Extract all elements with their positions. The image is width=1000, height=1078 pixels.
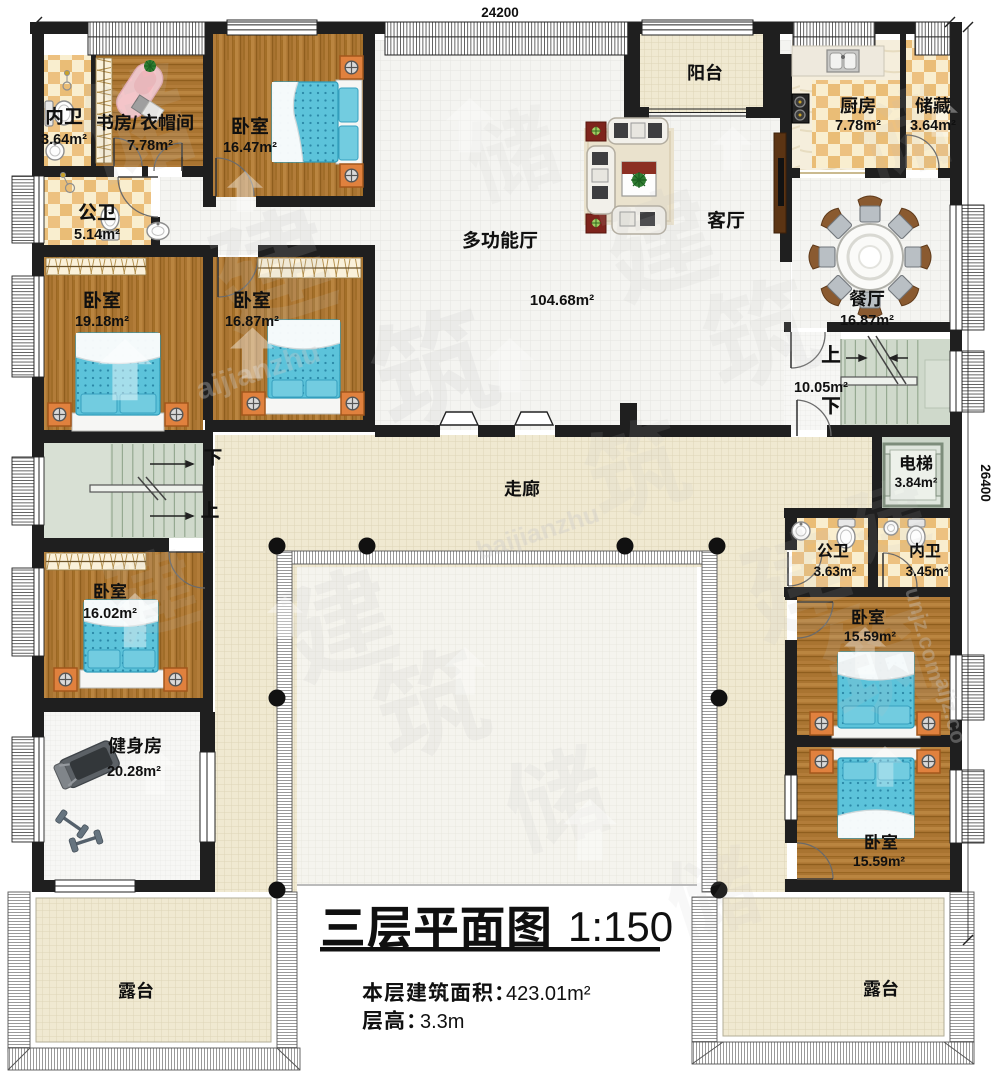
svg-text:3.45m²: 3.45m² (906, 564, 949, 579)
svg-text:7.78m²: 7.78m² (835, 118, 881, 134)
svg-text:20.28m²: 20.28m² (107, 764, 161, 780)
svg-text:15.59m²: 15.59m² (844, 628, 896, 644)
svg-text:3.3m: 3.3m (420, 1011, 464, 1033)
svg-text:3.64m²: 3.64m² (910, 118, 956, 134)
svg-text:423.01m²: 423.01m² (506, 983, 591, 1005)
svg-text:3.64m²: 3.64m² (41, 132, 87, 148)
svg-text:15.59m²: 15.59m² (853, 853, 905, 869)
svg-text:1:150: 1:150 (568, 903, 673, 950)
svg-text:104.68m²: 104.68m² (530, 292, 594, 309)
svg-text:3.84m²: 3.84m² (895, 475, 938, 490)
svg-text:26400: 26400 (978, 464, 993, 502)
svg-text:/: / (132, 113, 137, 133)
svg-text:19.18m²: 19.18m² (75, 314, 129, 330)
svg-text:24200: 24200 (481, 5, 519, 20)
svg-text:16.47m²: 16.47m² (223, 140, 277, 156)
svg-text:16.02m²: 16.02m² (83, 606, 137, 622)
svg-text:16.87m²: 16.87m² (840, 313, 894, 329)
svg-text:5.14m²: 5.14m² (74, 227, 120, 243)
svg-text:16.87m²: 16.87m² (225, 314, 279, 330)
svg-text:10.05m²: 10.05m² (794, 380, 848, 396)
svg-text:3.63m²: 3.63m² (814, 564, 857, 579)
svg-text:7.78m²: 7.78m² (127, 138, 173, 154)
